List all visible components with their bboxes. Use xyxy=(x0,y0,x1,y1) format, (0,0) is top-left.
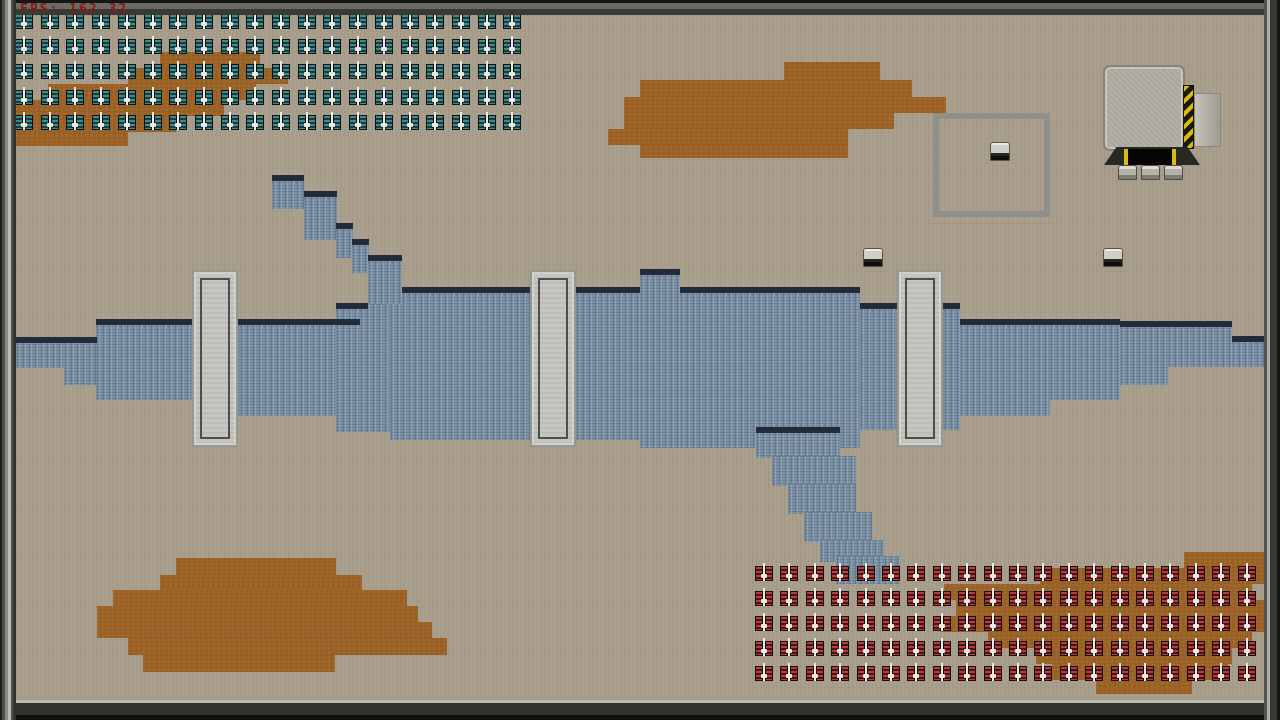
teal-unit[interactable] xyxy=(503,115,521,130)
frame-bottom-edge xyxy=(0,700,1280,720)
teal-unit[interactable] xyxy=(15,39,33,54)
red-unit[interactable] xyxy=(907,641,925,656)
bridge[interactable] xyxy=(530,270,576,447)
teal-unit[interactable] xyxy=(169,64,187,79)
red-unit[interactable] xyxy=(831,566,849,581)
unit-barrel xyxy=(1220,613,1222,631)
red-unit[interactable] xyxy=(1009,566,1027,581)
unit-barrel xyxy=(1144,663,1146,681)
unit-barrel xyxy=(357,61,359,79)
red-unit[interactable] xyxy=(857,666,875,681)
teal-unit[interactable] xyxy=(272,39,290,54)
factory-vent xyxy=(1118,165,1137,180)
teal-unit[interactable] xyxy=(503,39,521,54)
red-unit[interactable] xyxy=(1161,641,1179,656)
unit-barrel xyxy=(941,663,943,681)
red-unit[interactable] xyxy=(857,566,875,581)
water xyxy=(1050,320,1120,400)
red-unit[interactable] xyxy=(1085,666,1103,681)
unit-barrel xyxy=(100,87,102,105)
dirt-patch xyxy=(160,575,362,591)
red-unit[interactable] xyxy=(1060,641,1078,656)
teal-unit[interactable] xyxy=(246,64,264,79)
teal-unit[interactable] xyxy=(452,90,470,105)
unit-barrel xyxy=(49,61,51,79)
unit-barrel xyxy=(1093,663,1095,681)
red-unit[interactable] xyxy=(1085,591,1103,606)
red-unit[interactable] xyxy=(1136,566,1154,581)
red-unit[interactable] xyxy=(755,566,773,581)
unit-barrel xyxy=(409,87,411,105)
red-unit[interactable] xyxy=(831,591,849,606)
unit-barrel xyxy=(74,61,76,79)
teal-unit[interactable] xyxy=(426,14,444,29)
red-unit[interactable] xyxy=(831,616,849,631)
water xyxy=(680,288,860,448)
red-unit[interactable] xyxy=(882,666,900,681)
red-unit[interactable] xyxy=(806,616,824,631)
red-unit[interactable] xyxy=(1034,566,1052,581)
unit-barrel xyxy=(865,588,867,606)
red-unit[interactable] xyxy=(1136,666,1154,681)
red-unit[interactable] xyxy=(1060,666,1078,681)
teal-unit[interactable] xyxy=(246,39,264,54)
water-edge xyxy=(756,427,840,433)
teal-unit[interactable] xyxy=(195,39,213,54)
red-unit[interactable] xyxy=(1212,616,1230,631)
water xyxy=(960,320,1050,416)
game-stage[interactable]: FPS: 162.32 xyxy=(0,0,1280,720)
teal-unit[interactable] xyxy=(272,90,290,105)
unit-barrel xyxy=(383,87,385,105)
unit-barrel xyxy=(763,663,765,681)
factory-building[interactable] xyxy=(1100,62,1222,182)
unit-barrel xyxy=(280,87,282,105)
red-unit[interactable] xyxy=(1212,641,1230,656)
red-unit[interactable] xyxy=(806,591,824,606)
unit-barrel xyxy=(1144,613,1146,631)
red-unit[interactable] xyxy=(958,666,976,681)
red-unit[interactable] xyxy=(933,666,951,681)
red-unit[interactable] xyxy=(831,641,849,656)
unit-barrel xyxy=(152,112,154,130)
supply-pod[interactable] xyxy=(863,248,883,267)
teal-unit[interactable] xyxy=(478,64,496,79)
red-unit[interactable] xyxy=(958,616,976,631)
unit-barrel xyxy=(814,563,816,581)
red-unit[interactable] xyxy=(984,616,1002,631)
unit-barrel xyxy=(890,613,892,631)
water xyxy=(1168,322,1232,367)
red-unit[interactable] xyxy=(857,616,875,631)
teal-unit[interactable] xyxy=(349,39,367,54)
red-unit[interactable] xyxy=(1085,641,1103,656)
red-unit[interactable] xyxy=(1212,666,1230,681)
red-unit[interactable] xyxy=(1161,616,1179,631)
red-unit[interactable] xyxy=(1111,666,1129,681)
unit-barrel xyxy=(814,613,816,631)
unit-barrel xyxy=(383,36,385,54)
teal-unit[interactable] xyxy=(478,14,496,29)
water-edge xyxy=(1120,321,1232,327)
red-unit[interactable] xyxy=(755,641,773,656)
unit-barrel xyxy=(788,613,790,631)
dirt-patch xyxy=(784,62,880,80)
red-unit[interactable] xyxy=(1034,641,1052,656)
unit-barrel xyxy=(1169,638,1171,656)
water xyxy=(804,512,872,542)
unit-barrel xyxy=(941,638,943,656)
teal-unit[interactable] xyxy=(426,115,444,130)
red-unit[interactable] xyxy=(1161,591,1179,606)
red-unit[interactable] xyxy=(958,566,976,581)
red-unit[interactable] xyxy=(780,566,798,581)
teal-unit[interactable] xyxy=(144,64,162,79)
teal-unit[interactable] xyxy=(272,14,290,29)
teal-unit[interactable] xyxy=(272,64,290,79)
unit-barrel xyxy=(1246,588,1248,606)
teal-unit[interactable] xyxy=(195,90,213,105)
red-unit[interactable] xyxy=(1034,666,1052,681)
unit-barrel xyxy=(1169,663,1171,681)
teal-unit[interactable] xyxy=(349,14,367,29)
teal-unit[interactable] xyxy=(375,90,393,105)
teal-unit[interactable] xyxy=(41,64,59,79)
red-unit[interactable] xyxy=(1111,641,1129,656)
red-unit[interactable] xyxy=(882,616,900,631)
red-unit[interactable] xyxy=(1187,566,1205,581)
unit-barrel xyxy=(865,638,867,656)
red-unit[interactable] xyxy=(984,666,1002,681)
red-unit[interactable] xyxy=(1009,591,1027,606)
red-unit[interactable] xyxy=(755,666,773,681)
teal-unit[interactable] xyxy=(323,64,341,79)
teal-unit[interactable] xyxy=(144,90,162,105)
unit-barrel xyxy=(486,112,488,130)
red-unit[interactable] xyxy=(907,616,925,631)
red-unit[interactable] xyxy=(933,566,951,581)
bridge[interactable] xyxy=(192,270,238,447)
teal-unit[interactable] xyxy=(15,64,33,79)
unit-barrel xyxy=(966,563,968,581)
teal-unit[interactable] xyxy=(221,64,239,79)
bridge[interactable] xyxy=(897,270,943,447)
red-unit[interactable] xyxy=(806,666,824,681)
teal-unit[interactable] xyxy=(195,115,213,130)
unit-barrel xyxy=(486,61,488,79)
water xyxy=(96,320,192,400)
teal-unit[interactable] xyxy=(144,14,162,29)
red-unit[interactable] xyxy=(984,566,1002,581)
red-unit[interactable] xyxy=(857,641,875,656)
water-edge xyxy=(960,319,1120,325)
unit-barrel xyxy=(126,87,128,105)
teal-unit[interactable] xyxy=(66,90,84,105)
teal-unit[interactable] xyxy=(478,115,496,130)
red-unit[interactable] xyxy=(755,616,773,631)
teal-unit[interactable] xyxy=(298,90,316,105)
red-unit[interactable] xyxy=(1212,566,1230,581)
red-unit[interactable] xyxy=(780,666,798,681)
unit-barrel xyxy=(788,638,790,656)
red-unit[interactable] xyxy=(933,641,951,656)
red-unit[interactable] xyxy=(1187,641,1205,656)
red-unit[interactable] xyxy=(907,591,925,606)
red-unit[interactable] xyxy=(1212,591,1230,606)
unit-barrel xyxy=(460,87,462,105)
unit-barrel xyxy=(1017,588,1019,606)
frame-right-edge xyxy=(1264,0,1280,720)
unit-barrel xyxy=(357,36,359,54)
unit-barrel xyxy=(229,112,231,130)
teal-unit[interactable] xyxy=(92,64,110,79)
dirt-patch xyxy=(624,97,946,113)
red-unit[interactable] xyxy=(780,641,798,656)
teal-unit[interactable] xyxy=(144,115,162,130)
teal-unit[interactable] xyxy=(246,90,264,105)
red-unit[interactable] xyxy=(1009,616,1027,631)
red-unit[interactable] xyxy=(1085,566,1103,581)
unit-barrel xyxy=(941,563,943,581)
teal-unit[interactable] xyxy=(272,115,290,130)
red-unit[interactable] xyxy=(1009,666,1027,681)
teal-unit[interactable] xyxy=(169,115,187,130)
teal-unit[interactable] xyxy=(426,90,444,105)
red-unit[interactable] xyxy=(755,591,773,606)
teal-unit[interactable] xyxy=(41,115,59,130)
water-edge xyxy=(640,269,680,275)
teal-unit[interactable] xyxy=(452,14,470,29)
teal-unit[interactable] xyxy=(375,14,393,29)
teal-unit[interactable] xyxy=(375,39,393,54)
teal-unit[interactable] xyxy=(375,115,393,130)
teal-unit[interactable] xyxy=(323,90,341,105)
red-unit[interactable] xyxy=(984,641,1002,656)
unit-barrel xyxy=(1169,613,1171,631)
unit-barrel xyxy=(1042,638,1044,656)
teal-unit[interactable] xyxy=(246,14,264,29)
red-unit[interactable] xyxy=(1238,616,1256,631)
red-unit[interactable] xyxy=(1111,591,1129,606)
teal-unit[interactable] xyxy=(323,39,341,54)
teal-unit[interactable] xyxy=(66,64,84,79)
red-unit[interactable] xyxy=(1060,566,1078,581)
red-unit[interactable] xyxy=(857,591,875,606)
teal-unit[interactable] xyxy=(298,115,316,130)
dirt-patch xyxy=(97,622,432,638)
red-unit[interactable] xyxy=(1060,616,1078,631)
water xyxy=(64,338,97,385)
unit-barrel xyxy=(763,588,765,606)
teal-unit[interactable] xyxy=(452,64,470,79)
teal-unit[interactable] xyxy=(401,90,419,105)
teal-unit[interactable] xyxy=(118,115,136,130)
unit-barrel xyxy=(839,663,841,681)
teal-unit[interactable] xyxy=(118,90,136,105)
red-unit[interactable] xyxy=(958,591,976,606)
unit-barrel xyxy=(229,61,231,79)
red-unit[interactable] xyxy=(882,641,900,656)
red-unit[interactable] xyxy=(1187,591,1205,606)
water-edge xyxy=(272,175,304,181)
teal-unit[interactable] xyxy=(92,115,110,130)
teal-unit[interactable] xyxy=(401,39,419,54)
red-unit[interactable] xyxy=(958,641,976,656)
unit-barrel xyxy=(1195,663,1197,681)
teal-unit[interactable] xyxy=(503,90,521,105)
teal-unit[interactable] xyxy=(221,39,239,54)
teal-unit[interactable] xyxy=(323,115,341,130)
water-edge xyxy=(336,303,368,309)
unit-barrel xyxy=(49,36,51,54)
teal-unit[interactable] xyxy=(478,90,496,105)
unit-barrel xyxy=(966,613,968,631)
supply-pod[interactable] xyxy=(1103,248,1123,267)
teal-unit[interactable] xyxy=(92,90,110,105)
teal-unit[interactable] xyxy=(503,14,521,29)
teal-unit[interactable] xyxy=(349,64,367,79)
red-unit[interactable] xyxy=(984,591,1002,606)
unit-barrel xyxy=(203,87,205,105)
unit-barrel xyxy=(306,61,308,79)
red-unit[interactable] xyxy=(1060,591,1078,606)
red-unit[interactable] xyxy=(1085,616,1103,631)
teal-unit[interactable] xyxy=(452,39,470,54)
red-unit[interactable] xyxy=(831,666,849,681)
teal-unit[interactable] xyxy=(426,64,444,79)
unit-barrel xyxy=(486,36,488,54)
unit-barrel xyxy=(1017,563,1019,581)
teal-unit[interactable] xyxy=(221,14,239,29)
red-unit[interactable] xyxy=(933,616,951,631)
teal-unit[interactable] xyxy=(195,64,213,79)
red-unit[interactable] xyxy=(1238,666,1256,681)
teal-unit[interactable] xyxy=(349,115,367,130)
teal-unit[interactable] xyxy=(401,64,419,79)
teal-unit[interactable] xyxy=(426,39,444,54)
red-unit[interactable] xyxy=(1111,566,1129,581)
unit-barrel xyxy=(1093,563,1095,581)
water xyxy=(304,192,337,240)
dirt-patch xyxy=(640,80,912,97)
unit-barrel xyxy=(915,638,917,656)
teal-unit[interactable] xyxy=(92,39,110,54)
red-unit[interactable] xyxy=(1161,566,1179,581)
teal-unit[interactable] xyxy=(323,14,341,29)
frame-top-edge xyxy=(0,0,1280,15)
unit-barrel xyxy=(1068,663,1070,681)
teal-unit[interactable] xyxy=(195,14,213,29)
red-unit[interactable] xyxy=(1187,616,1205,631)
unit-barrel xyxy=(357,87,359,105)
red-unit[interactable] xyxy=(1034,591,1052,606)
red-unit[interactable] xyxy=(1136,616,1154,631)
water xyxy=(368,256,402,304)
unit-barrel xyxy=(1246,563,1248,581)
red-unit[interactable] xyxy=(780,591,798,606)
teal-unit[interactable] xyxy=(298,64,316,79)
teal-unit[interactable] xyxy=(401,115,419,130)
red-unit[interactable] xyxy=(1161,666,1179,681)
unit-barrel xyxy=(409,112,411,130)
teal-unit[interactable] xyxy=(401,14,419,29)
unit-barrel xyxy=(992,588,994,606)
unit-barrel xyxy=(306,87,308,105)
red-unit[interactable] xyxy=(882,566,900,581)
red-unit[interactable] xyxy=(907,666,925,681)
teal-unit[interactable] xyxy=(169,14,187,29)
red-unit[interactable] xyxy=(907,566,925,581)
unit-barrel xyxy=(254,36,256,54)
red-unit[interactable] xyxy=(1136,591,1154,606)
unit-barrel xyxy=(1042,613,1044,631)
teal-unit[interactable] xyxy=(503,64,521,79)
unit-barrel xyxy=(511,112,513,130)
red-unit[interactable] xyxy=(933,591,951,606)
teal-unit[interactable] xyxy=(246,115,264,130)
red-unit[interactable] xyxy=(1238,566,1256,581)
teal-unit[interactable] xyxy=(452,115,470,130)
teal-unit[interactable] xyxy=(144,39,162,54)
supply-pod[interactable] xyxy=(990,142,1010,161)
teal-unit[interactable] xyxy=(478,39,496,54)
unit-barrel xyxy=(1169,588,1171,606)
red-unit[interactable] xyxy=(1034,616,1052,631)
teal-unit[interactable] xyxy=(15,115,33,130)
unit-barrel xyxy=(1169,563,1171,581)
teal-unit[interactable] xyxy=(169,39,187,54)
unit-barrel xyxy=(1017,613,1019,631)
teal-unit[interactable] xyxy=(66,115,84,130)
teal-unit[interactable] xyxy=(118,64,136,79)
teal-unit[interactable] xyxy=(15,90,33,105)
red-unit[interactable] xyxy=(780,616,798,631)
teal-unit[interactable] xyxy=(375,64,393,79)
red-unit[interactable] xyxy=(1009,641,1027,656)
unit-barrel xyxy=(915,563,917,581)
teal-unit[interactable] xyxy=(66,39,84,54)
red-unit[interactable] xyxy=(1111,616,1129,631)
teal-unit[interactable] xyxy=(41,90,59,105)
red-unit[interactable] xyxy=(1136,641,1154,656)
red-unit[interactable] xyxy=(806,566,824,581)
teal-unit[interactable] xyxy=(298,39,316,54)
red-unit[interactable] xyxy=(1238,591,1256,606)
teal-unit[interactable] xyxy=(221,90,239,105)
teal-unit[interactable] xyxy=(298,14,316,29)
water-edge xyxy=(368,255,402,261)
teal-unit[interactable] xyxy=(169,90,187,105)
unit-barrel xyxy=(280,61,282,79)
teal-unit[interactable] xyxy=(349,90,367,105)
factory-vent xyxy=(1141,165,1160,180)
unit-barrel xyxy=(1119,638,1121,656)
unit-barrel xyxy=(23,112,25,130)
red-unit[interactable] xyxy=(882,591,900,606)
unit-barrel xyxy=(1119,563,1121,581)
red-unit[interactable] xyxy=(806,641,824,656)
red-unit[interactable] xyxy=(1187,666,1205,681)
red-unit[interactable] xyxy=(1238,641,1256,656)
teal-unit[interactable] xyxy=(41,39,59,54)
water-edge xyxy=(680,287,860,293)
unit-barrel xyxy=(74,36,76,54)
teal-unit[interactable] xyxy=(118,39,136,54)
unit-barrel xyxy=(788,663,790,681)
teal-unit[interactable] xyxy=(221,115,239,130)
water-edge xyxy=(402,287,640,293)
unit-barrel xyxy=(152,87,154,105)
